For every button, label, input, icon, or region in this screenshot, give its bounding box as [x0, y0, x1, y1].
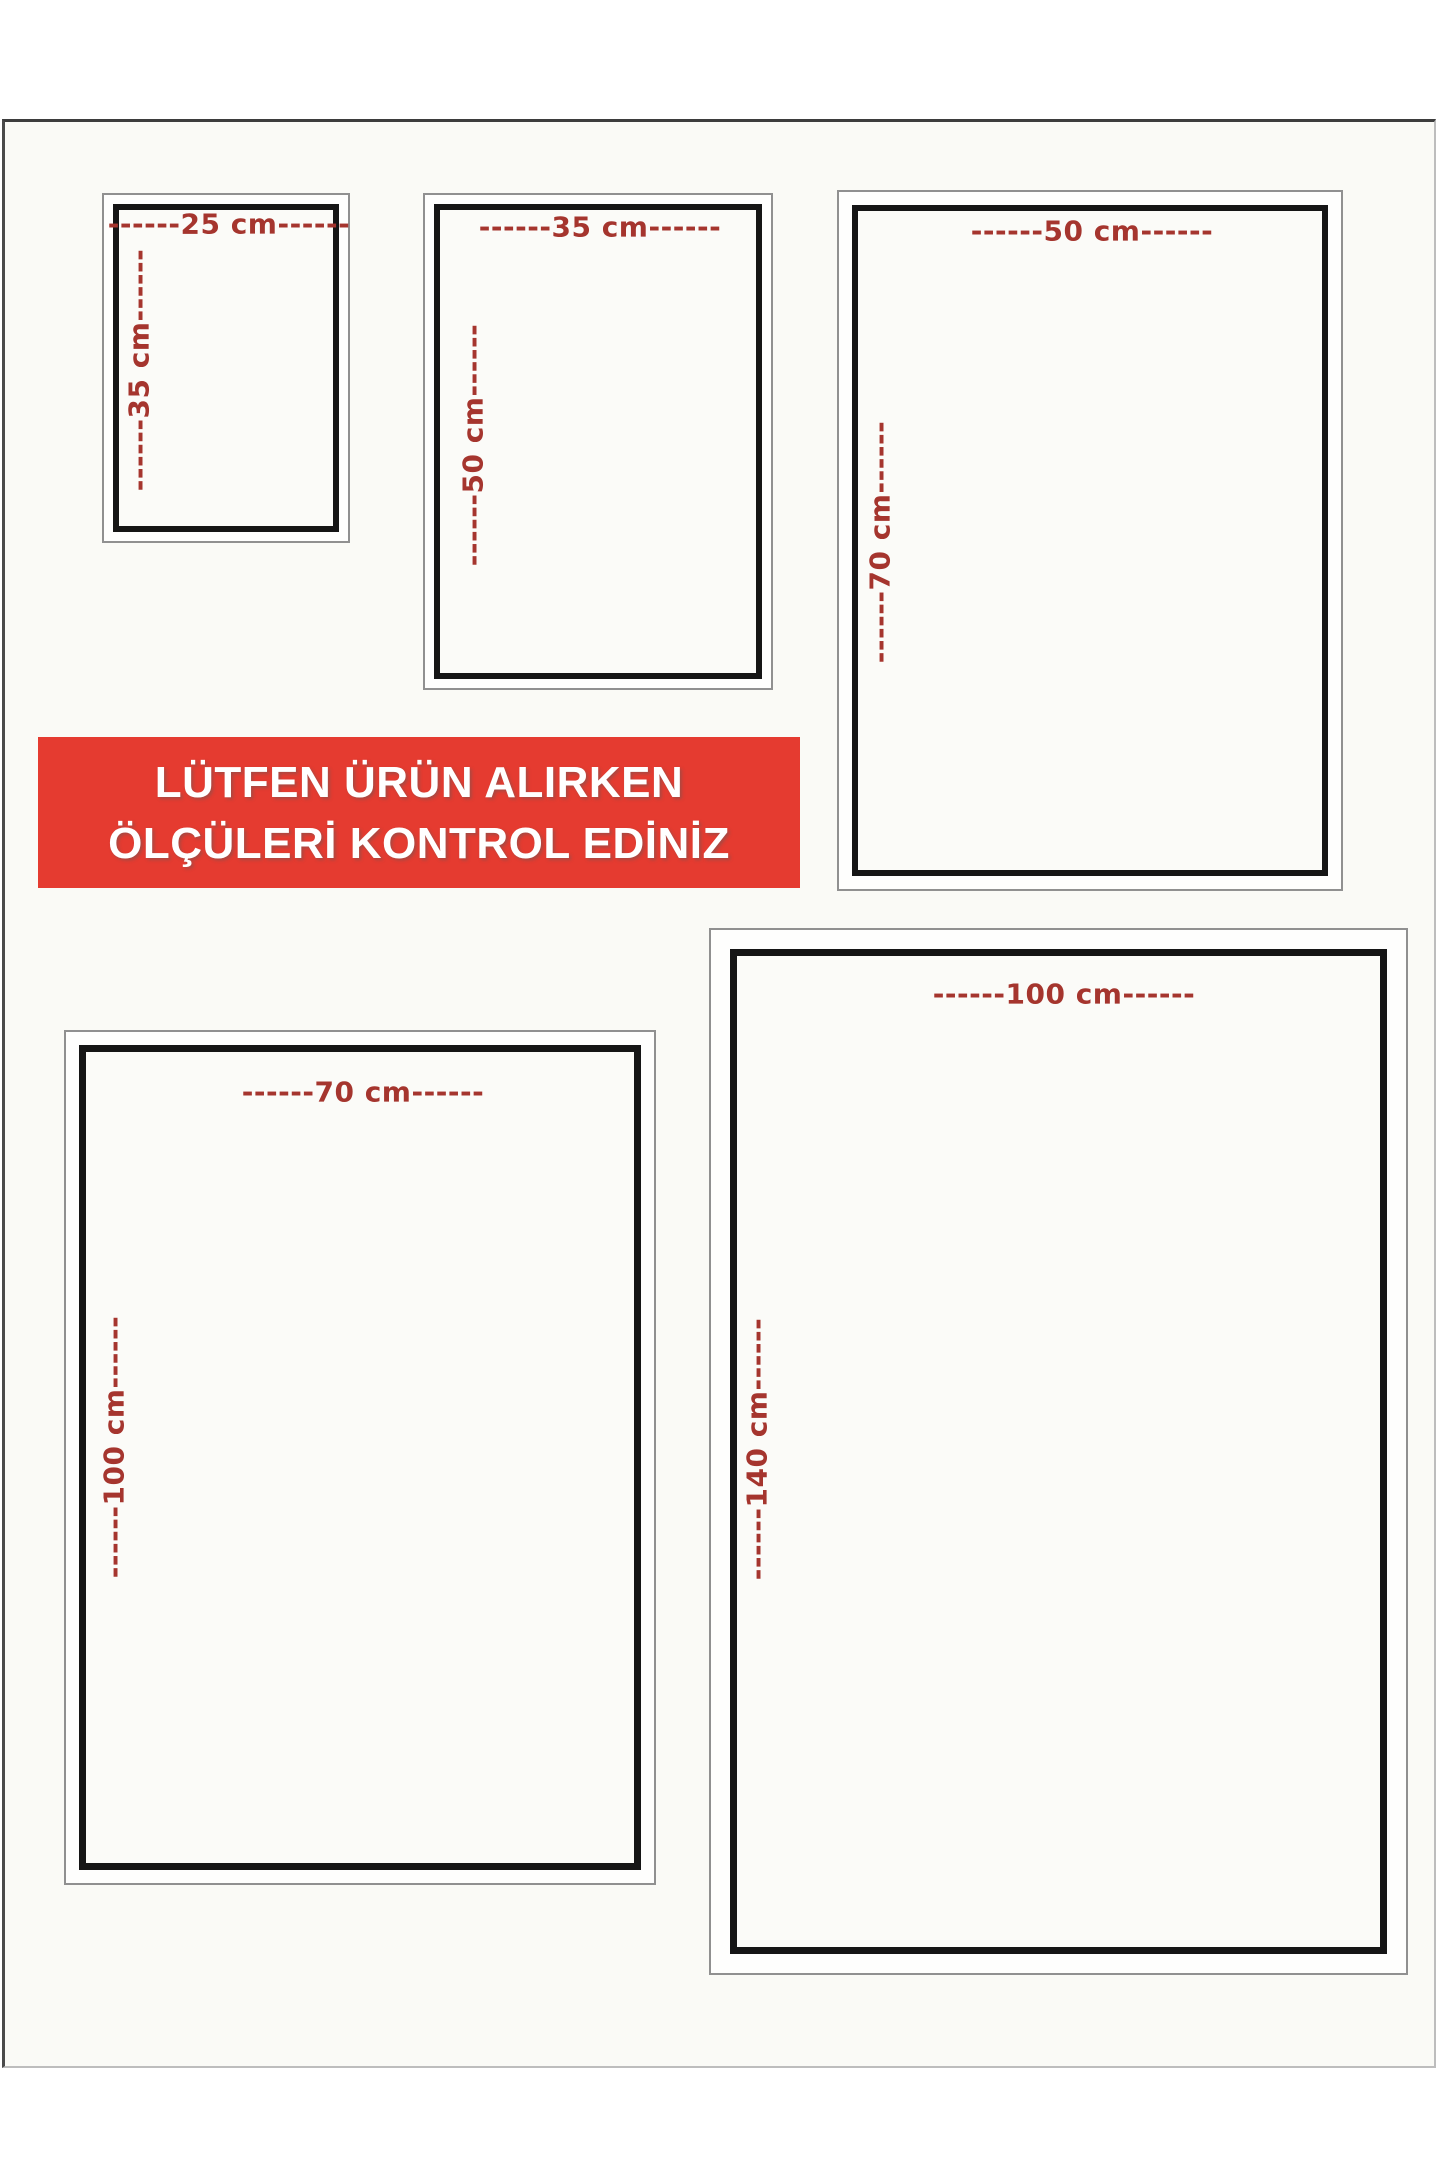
width-label-35x50: ------35 cm------ — [479, 211, 721, 244]
width-label-100x140: ------100 cm------ — [933, 978, 1195, 1011]
warning-banner: LÜTFEN ÜRÜN ALIRKEN ÖLÇÜLERİ KONTROL EDİ… — [38, 737, 800, 888]
size-box-25x35: ------25 cm------ ------35 cm------ — [102, 193, 350, 543]
size-box-100x140: ------100 cm------ ------140 cm------ — [709, 928, 1408, 1975]
height-label-100x140: ------140 cm------ — [741, 1318, 774, 1580]
size-guide-image: ------25 cm------ ------35 cm------ ----… — [0, 0, 1440, 2160]
size-box-35x50: ------35 cm------ ------50 cm------ — [423, 193, 773, 690]
size-box-50x70: ------50 cm------ ------70 cm------ — [837, 190, 1343, 891]
size-box-100x140-border — [730, 949, 1387, 1954]
warning-banner-line2: ÖLÇÜLERİ KONTROL EDİNİZ — [108, 813, 730, 874]
height-label-25x35: ------35 cm------ — [123, 249, 156, 491]
height-label-35x50: ------50 cm------ — [457, 324, 490, 566]
width-label-50x70: ------50 cm------ — [971, 215, 1213, 248]
width-label-25x35: ------25 cm------ — [108, 208, 350, 241]
size-box-70x100: ------70 cm------ ------100 cm------ — [64, 1030, 656, 1885]
height-label-70x100: ------100 cm------ — [98, 1316, 131, 1578]
width-label-70x100: ------70 cm------ — [242, 1076, 484, 1109]
warning-banner-line1: LÜTFEN ÜRÜN ALIRKEN — [155, 752, 684, 813]
size-box-70x100-border — [79, 1045, 641, 1870]
height-label-50x70: ------70 cm------ — [864, 421, 897, 663]
size-box-50x70-border — [852, 205, 1328, 876]
